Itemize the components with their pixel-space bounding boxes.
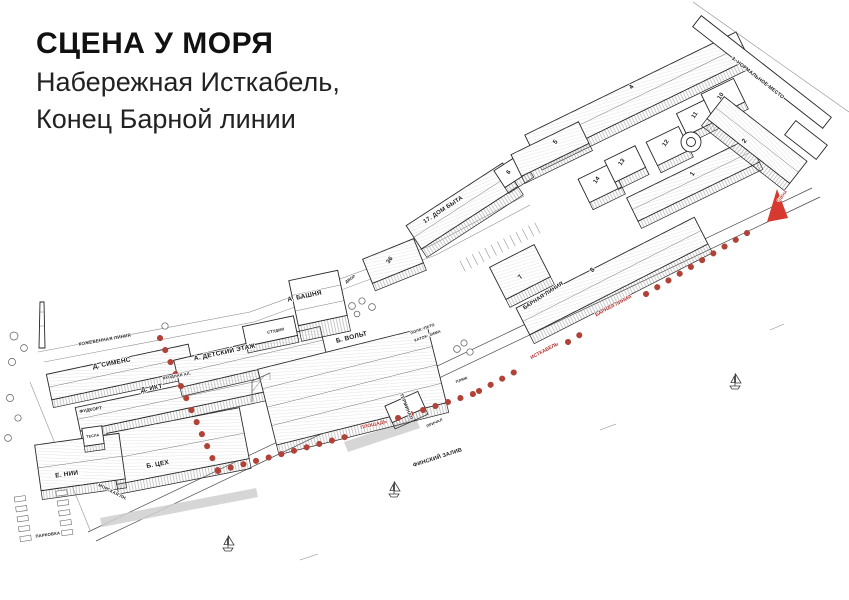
label-plyazh: ПЛЯЖ (455, 376, 468, 384)
route-segment-embankment (479, 367, 524, 391)
page-title: СЦЕНА У МОРЯ (36, 24, 340, 64)
building-bashnya (289, 270, 351, 341)
sailboat-icon (389, 482, 400, 497)
building-tesla (82, 426, 105, 453)
page-subtitle-2: Конец Барной линии (36, 101, 340, 138)
route-segment-mid (568, 330, 588, 342)
page-subtitle-1: Набережная Исткабель, (36, 64, 340, 101)
building-36 (363, 239, 427, 291)
sailboat-icon (223, 536, 234, 551)
label-kozhevennaya-liniya: КОЖЕВЕННАЯ ЛИНИЯ (78, 332, 131, 346)
chimney-icon (39, 302, 45, 348)
label-dvor: ДВОР (345, 274, 357, 284)
sailboat-icon (730, 374, 741, 389)
label-finskiy-zaliv: ФИНСКИЙ ЗАЛИВ (412, 445, 463, 468)
label-parking: ПАРКОВКА (35, 530, 60, 538)
building-rotunda (681, 132, 701, 152)
label-prichal: ПРИЧАЛ (426, 418, 444, 429)
title-block: СЦЕНА У МОРЯ Набережная Исткабель, Конец… (36, 24, 340, 138)
map-illustration: СЦЕНА У МОРЯ Набережная Исткабель, Конец… (0, 0, 849, 600)
